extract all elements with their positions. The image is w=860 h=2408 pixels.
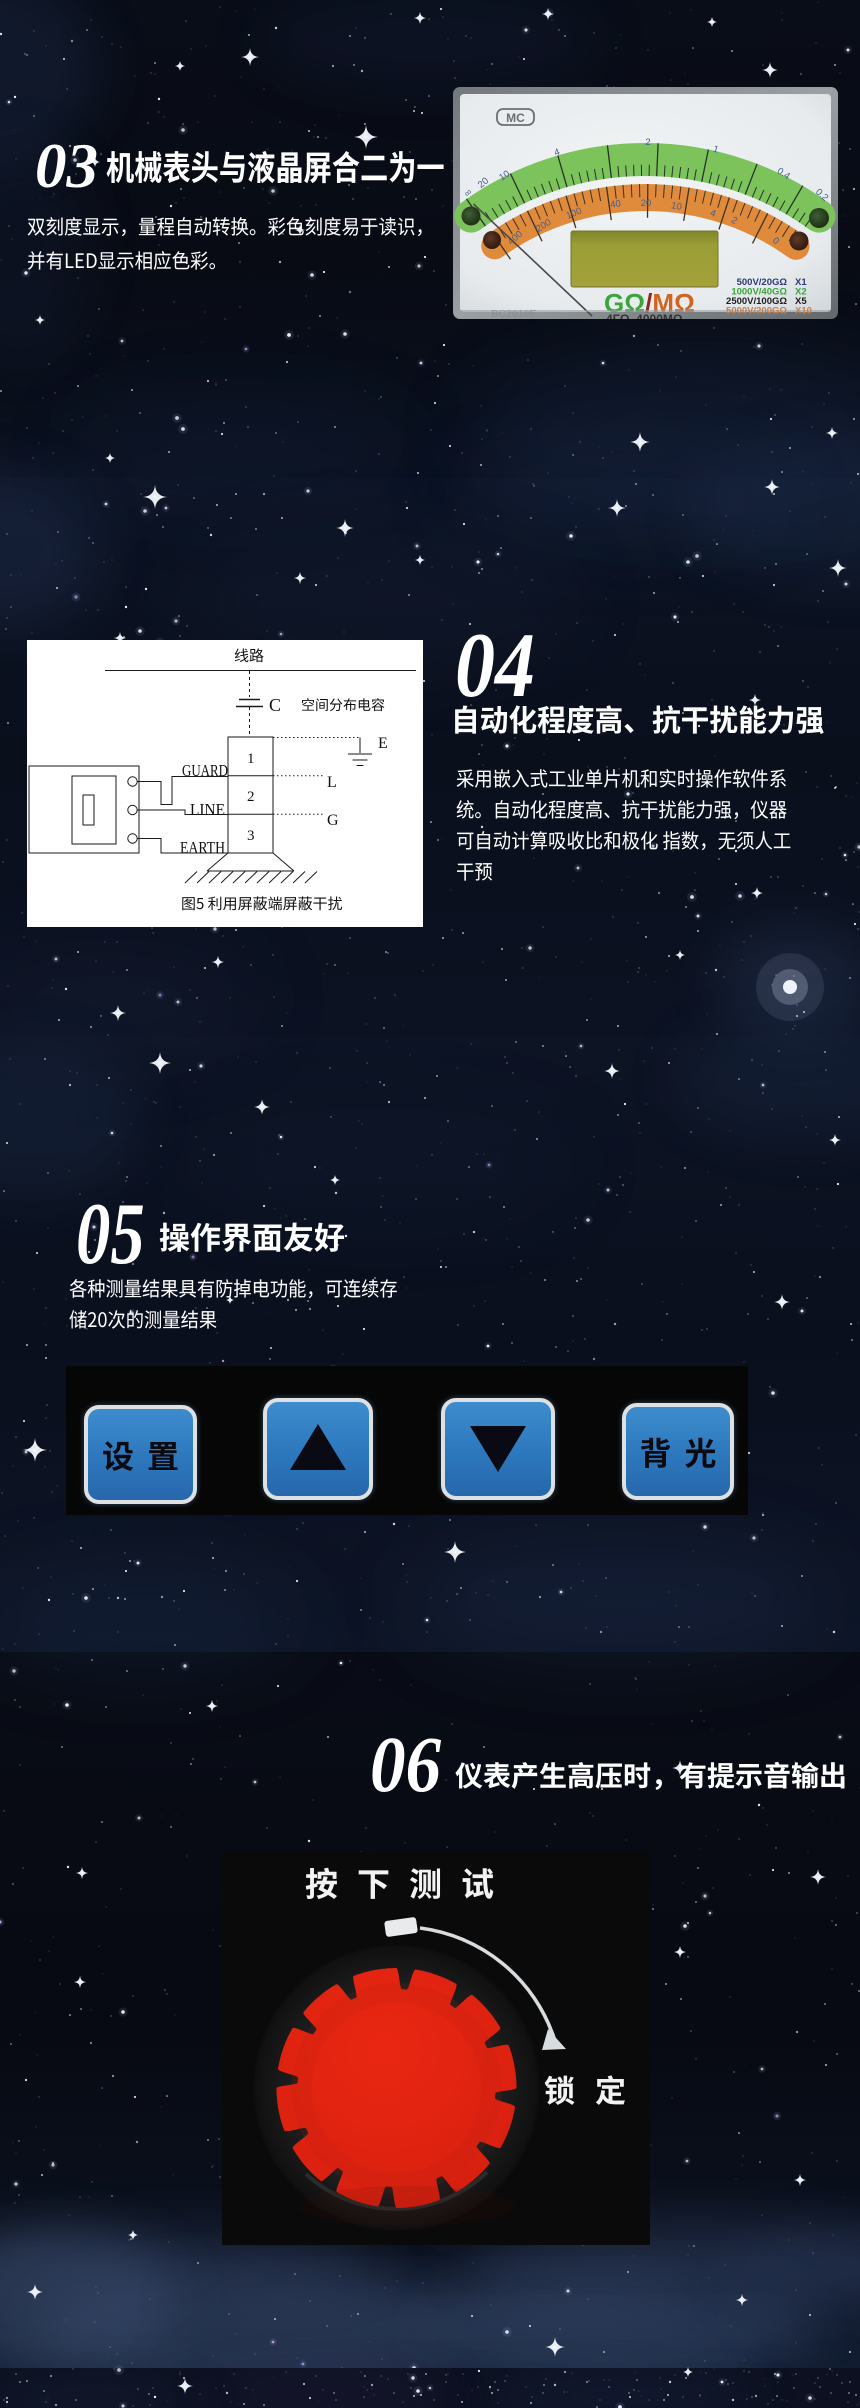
svg-text:X10: X10 [795,306,812,317]
svg-text:GUARD: GUARD [182,761,228,780]
svg-text:4ΓΩ–4000MΩ: 4ΓΩ–4000MΩ [606,312,683,319]
svg-text:C: C [269,695,281,715]
svg-text:40: 40 [610,198,622,211]
svg-text:MC: MC [506,111,525,125]
svg-text:10: 10 [670,200,682,213]
svg-text:L: L [327,774,337,791]
svg-text:按下测试: 按下测试 [305,1858,513,1906]
svg-text:图5 利用屏蔽端屏蔽干扰: 图5 利用屏蔽端屏蔽干扰 [181,893,343,914]
svg-text:线路: 线路 [234,645,264,666]
svg-text:G: G [327,812,339,829]
svg-text:2: 2 [645,137,650,148]
svg-text:20: 20 [641,198,652,209]
svg-text:LINE: LINE [190,800,225,819]
svg-text:BC2010E: BC2010E [491,308,537,319]
svg-text:空间分布电容: 空间分布电容 [301,695,385,715]
svg-text:3: 3 [247,828,255,844]
svg-text:EARTH: EARTH [180,838,225,857]
svg-text:5000V/200GΩ: 5000V/200GΩ [726,306,787,317]
svg-text:E: E [378,735,388,752]
svg-text:锁定: 锁定 [544,2066,646,2111]
svg-text:1: 1 [247,751,255,767]
svg-text:2: 2 [247,789,255,805]
